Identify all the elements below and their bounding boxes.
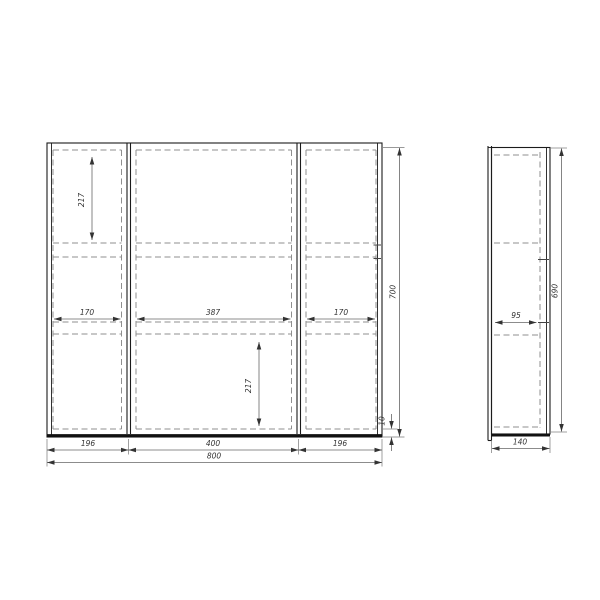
dim-total-depth-label: 140 [513, 438, 528, 447]
dim-bottom-offset: 10 [378, 414, 398, 451]
dim-bottom-offset-label: 10 [378, 416, 387, 426]
front-hidden-edges-left-section [53, 150, 122, 429]
dim-section-width-middle-label: 400 [206, 439, 221, 448]
dim-total-width: 800 [47, 452, 382, 463]
dim-inner-height-middle-label: 217 [244, 379, 253, 394]
front-view: 217 217 170 387 170 196 400 [47, 143, 405, 467]
dim-total-width-label: 800 [207, 452, 222, 461]
dim-inner-height-left: 217 [77, 157, 92, 240]
front-divider-right [297, 143, 301, 434]
dim-inner-width-right-label: 170 [334, 308, 349, 317]
dim-total-height-label: 700 [389, 285, 398, 300]
cabinet-drawing: 217 217 170 387 170 196 400 [0, 0, 600, 600]
dim-inner-width-middle-label: 387 [206, 308, 221, 317]
technical-drawing-canvas: 217 217 170 387 170 196 400 [0, 0, 600, 600]
front-hidden-edges-right-section [306, 150, 376, 429]
dim-inner-widths-row: 170 387 170 [54, 308, 375, 319]
front-carcass-outline [47, 143, 382, 437]
dim-door-height-label: 690 [551, 284, 560, 299]
dim-inner-height-middle: 217 [244, 342, 259, 426]
side-view: 95 690 140 [488, 146, 567, 453]
side-hidden-edges [494, 152, 540, 428]
dim-section-widths-row: 196 400 196 [47, 439, 382, 450]
dim-section-width-left-label: 196 [81, 439, 96, 448]
front-divider-left [127, 143, 131, 434]
front-hidden-edges-middle-section [136, 150, 292, 429]
side-body-outline [488, 148, 550, 436]
dim-total-depth: 140 [492, 437, 551, 453]
dim-total-height: 700 [383, 148, 405, 438]
dim-door-height: 690 [551, 148, 568, 432]
dim-section-width-right-label: 196 [333, 439, 348, 448]
dim-inner-height-left-label: 217 [77, 193, 86, 208]
dim-shelf-depth-label: 95 [511, 311, 521, 320]
dim-shelf-depth: 95 [495, 311, 537, 323]
dim-inner-width-left-label: 170 [80, 308, 95, 317]
